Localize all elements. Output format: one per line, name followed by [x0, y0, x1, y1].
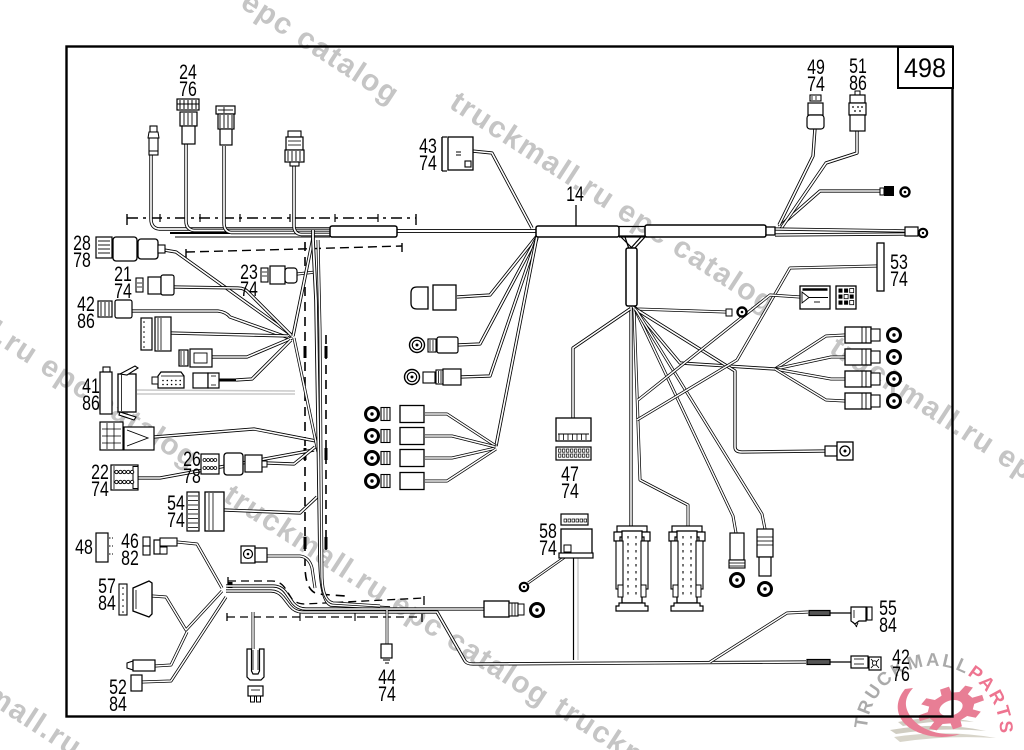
svg-text:86: 86: [77, 310, 95, 333]
svg-text:74: 74: [167, 509, 185, 532]
svg-text:78: 78: [183, 465, 201, 488]
svg-text:74: 74: [890, 268, 908, 291]
svg-text:74: 74: [807, 73, 825, 96]
svg-text:74: 74: [561, 480, 579, 503]
svg-text:74: 74: [378, 683, 396, 706]
svg-text:86: 86: [82, 392, 100, 415]
svg-text:84: 84: [109, 693, 127, 716]
svg-text:48: 48: [75, 536, 93, 559]
svg-text:74: 74: [240, 278, 258, 301]
svg-text:84: 84: [98, 592, 116, 615]
svg-text:76: 76: [892, 663, 910, 686]
svg-text:74: 74: [539, 537, 557, 560]
svg-text:84: 84: [879, 614, 897, 637]
svg-text:74: 74: [114, 280, 132, 303]
svg-text:76: 76: [179, 78, 197, 101]
svg-text:78: 78: [73, 249, 91, 272]
svg-text:74: 74: [91, 478, 109, 501]
svg-text:498: 498: [904, 53, 946, 83]
svg-text:82: 82: [121, 547, 139, 570]
svg-text:86: 86: [849, 72, 867, 95]
svg-text:14: 14: [566, 183, 584, 206]
svg-text:74: 74: [419, 152, 437, 175]
